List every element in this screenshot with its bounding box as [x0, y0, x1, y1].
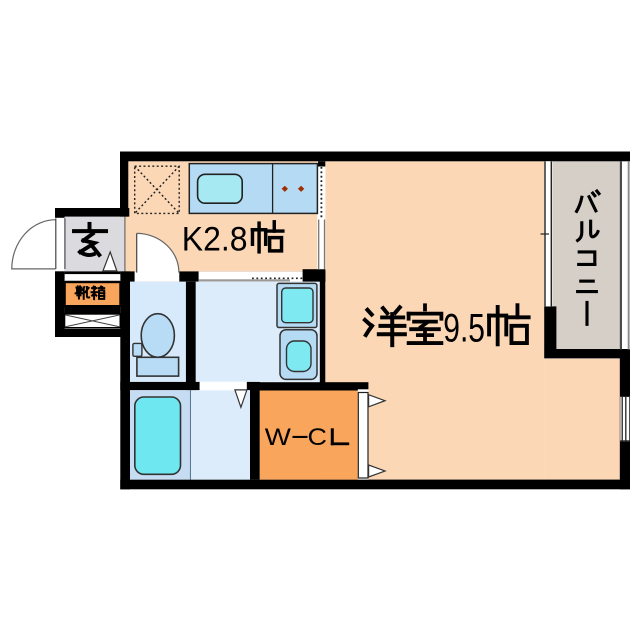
svg-text:W: W — [265, 423, 291, 451]
svg-text:9.5: 9.5 — [443, 307, 485, 351]
svg-text:C: C — [308, 424, 327, 451]
svg-text:K2.8: K2.8 — [182, 219, 248, 257]
